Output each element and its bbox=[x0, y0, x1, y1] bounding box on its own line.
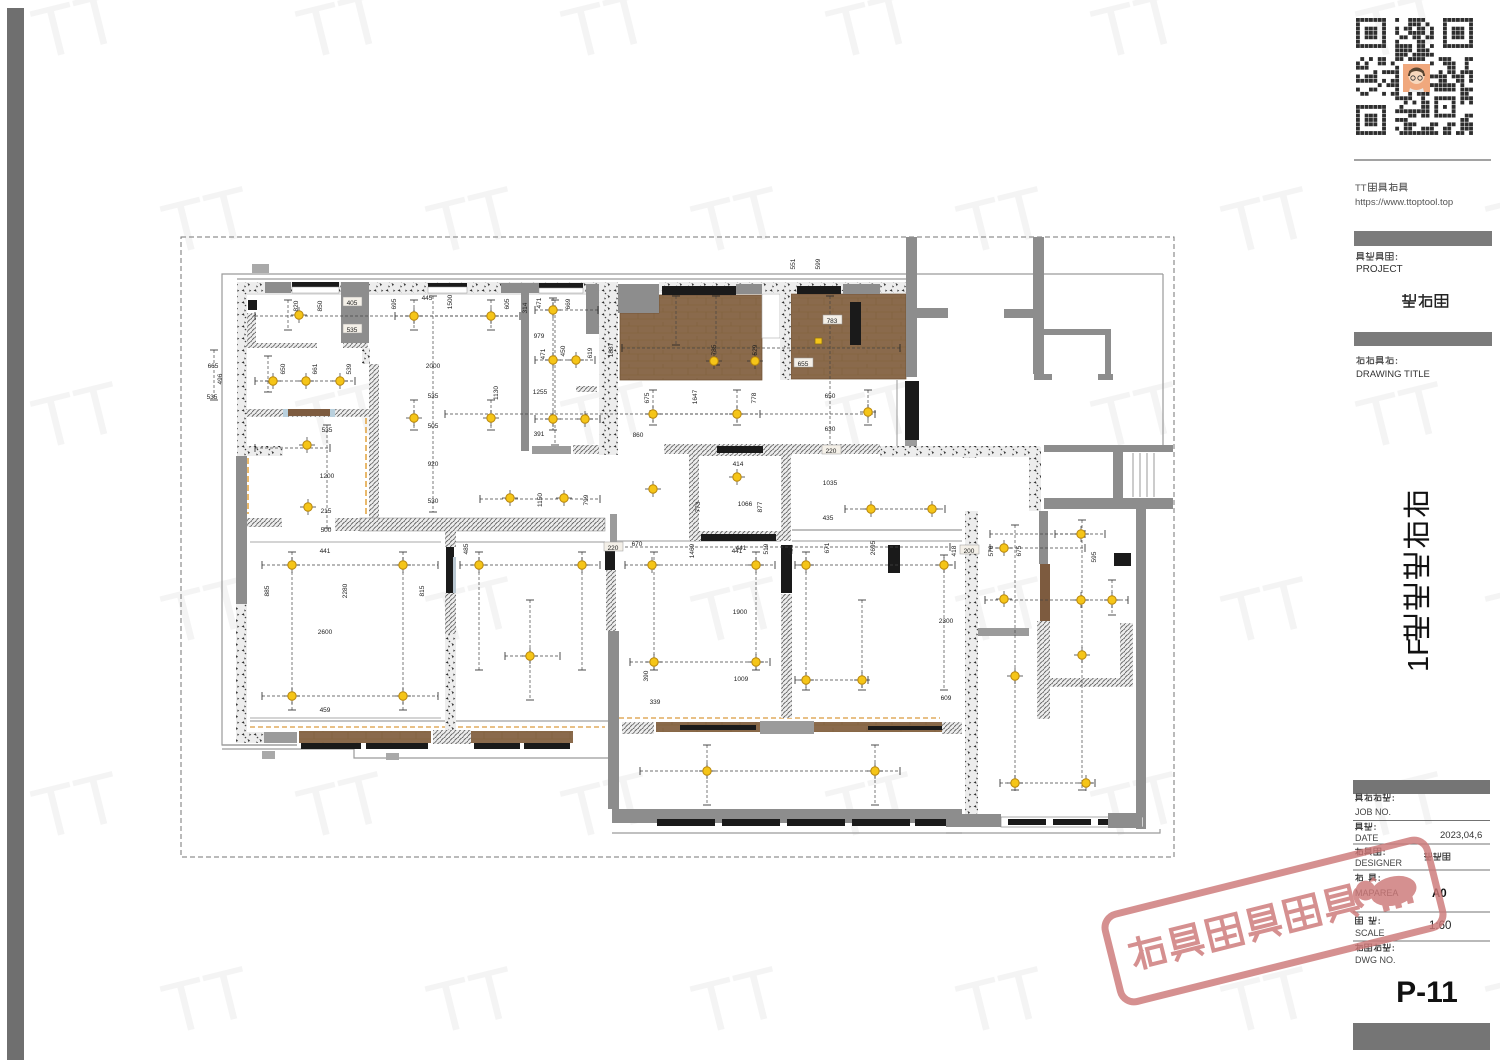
svg-text:TT: TT bbox=[685, 952, 790, 1051]
svg-text:441: 441 bbox=[320, 548, 331, 555]
svg-text:920: 920 bbox=[428, 461, 439, 468]
svg-text:535: 535 bbox=[428, 393, 439, 400]
svg-text:220: 220 bbox=[826, 448, 837, 455]
svg-text:505: 505 bbox=[428, 423, 439, 430]
svg-text:390: 390 bbox=[643, 670, 650, 681]
svg-text:P-11: P-11 bbox=[1396, 976, 1458, 1009]
svg-text:773: 773 bbox=[695, 501, 702, 512]
svg-text:815: 815 bbox=[419, 585, 426, 596]
svg-text:TT: TT bbox=[555, 757, 660, 856]
svg-text:391: 391 bbox=[534, 431, 545, 438]
svg-text:551: 551 bbox=[790, 258, 797, 269]
svg-text:519: 519 bbox=[763, 543, 770, 554]
svg-text:500: 500 bbox=[321, 527, 332, 534]
svg-text:TT: TT bbox=[820, 0, 925, 76]
svg-text:DRAWING TITLE: DRAWING TITLE bbox=[1356, 369, 1430, 380]
svg-text:675: 675 bbox=[1016, 545, 1023, 556]
svg-text:DWG NO.: DWG NO. bbox=[1355, 955, 1396, 965]
svg-text:TT: TT bbox=[1480, 172, 1500, 271]
svg-text:TT: TT bbox=[950, 952, 1055, 1051]
svg-text:1900: 1900 bbox=[733, 609, 748, 616]
svg-text:https://www.ttoptool.top: https://www.ttoptool.top bbox=[1355, 197, 1453, 208]
svg-text:TT: TT bbox=[1350, 367, 1455, 466]
svg-text:695: 695 bbox=[391, 298, 398, 309]
svg-text:1130: 1130 bbox=[493, 386, 500, 400]
svg-text:799: 799 bbox=[583, 494, 590, 505]
svg-text:TT: TT bbox=[290, 757, 395, 856]
svg-text:486: 486 bbox=[788, 544, 795, 555]
svg-text:535: 535 bbox=[347, 327, 358, 334]
svg-text:820: 820 bbox=[293, 300, 300, 311]
svg-text:671: 671 bbox=[824, 542, 831, 553]
svg-text:535: 535 bbox=[207, 394, 218, 401]
svg-text:576: 576 bbox=[988, 545, 995, 556]
svg-text:TT: TT bbox=[155, 952, 260, 1051]
svg-text:314: 314 bbox=[522, 302, 529, 313]
svg-text:441: 441 bbox=[736, 545, 747, 552]
svg-text:TT: TT bbox=[25, 367, 130, 466]
svg-text:670: 670 bbox=[632, 541, 643, 548]
svg-text:529: 529 bbox=[752, 344, 759, 355]
svg-text:TT: TT bbox=[420, 172, 525, 271]
svg-text:471: 471 bbox=[540, 348, 547, 359]
svg-text:619: 619 bbox=[587, 347, 594, 358]
svg-text:485: 485 bbox=[463, 543, 470, 554]
svg-text:405: 405 bbox=[347, 300, 358, 307]
svg-text:599: 599 bbox=[815, 258, 822, 269]
svg-text:1500: 1500 bbox=[447, 294, 454, 309]
svg-text:778: 778 bbox=[751, 392, 758, 403]
svg-text:1F: 1F bbox=[1403, 638, 1435, 672]
svg-text:860: 860 bbox=[633, 432, 644, 439]
svg-text:SCALE: SCALE bbox=[1355, 928, 1385, 938]
svg-text:220: 220 bbox=[608, 545, 619, 552]
svg-text:PROJECT: PROJECT bbox=[1356, 264, 1403, 275]
svg-text:TT: TT bbox=[555, 0, 660, 76]
svg-text:TT: TT bbox=[1215, 172, 1320, 271]
svg-text:435: 435 bbox=[823, 515, 834, 522]
svg-text:DATE: DATE bbox=[1355, 833, 1378, 843]
svg-text:TT: TT bbox=[685, 172, 790, 271]
svg-text:TT: TT bbox=[290, 0, 395, 76]
svg-text:605: 605 bbox=[504, 298, 511, 309]
svg-text:496: 496 bbox=[217, 373, 224, 384]
svg-text:650: 650 bbox=[280, 363, 287, 374]
svg-text:1150: 1150 bbox=[537, 493, 544, 507]
svg-text:TT: TT bbox=[25, 757, 130, 856]
svg-text:1035: 1035 bbox=[823, 480, 838, 487]
svg-text:675: 675 bbox=[644, 392, 651, 403]
svg-text:TT: TT bbox=[155, 172, 260, 271]
svg-text:471: 471 bbox=[536, 297, 543, 308]
svg-text:655: 655 bbox=[798, 361, 809, 368]
svg-text:414: 414 bbox=[733, 461, 744, 468]
svg-text:TT: TT bbox=[1355, 183, 1367, 194]
svg-text:TT: TT bbox=[420, 952, 525, 1051]
svg-text:1066: 1066 bbox=[738, 501, 753, 508]
svg-text:535: 535 bbox=[322, 427, 333, 434]
svg-text:1200: 1200 bbox=[320, 473, 335, 480]
svg-text:885: 885 bbox=[264, 585, 271, 596]
svg-text:665: 665 bbox=[208, 363, 219, 370]
svg-text:669: 669 bbox=[565, 298, 572, 309]
svg-text:2023,04,6: 2023,04,6 bbox=[1440, 830, 1482, 841]
svg-text:215: 215 bbox=[321, 508, 332, 515]
svg-text:785: 785 bbox=[711, 344, 718, 355]
svg-text:DESIGNER: DESIGNER bbox=[1355, 858, 1403, 868]
svg-text:418: 418 bbox=[951, 545, 958, 556]
svg-text:2300: 2300 bbox=[939, 618, 954, 625]
svg-text:2600: 2600 bbox=[318, 629, 333, 636]
svg-text:609: 609 bbox=[941, 695, 952, 702]
svg-text:2000: 2000 bbox=[426, 363, 441, 370]
svg-text:TT: TT bbox=[1480, 562, 1500, 661]
svg-text:530: 530 bbox=[428, 498, 439, 505]
svg-text:TT: TT bbox=[25, 0, 130, 76]
svg-text:850: 850 bbox=[317, 300, 324, 311]
svg-text:TT: TT bbox=[1085, 0, 1190, 76]
svg-text:877: 877 bbox=[757, 501, 764, 512]
svg-text:TT: TT bbox=[1215, 562, 1320, 661]
svg-text:445: 445 bbox=[422, 295, 433, 302]
svg-text:2280: 2280 bbox=[342, 583, 349, 598]
svg-text:459: 459 bbox=[320, 707, 331, 714]
svg-text:339: 339 bbox=[650, 699, 661, 706]
svg-text:1887: 1887 bbox=[608, 342, 615, 357]
svg-text:JOB NO.: JOB NO. bbox=[1355, 807, 1391, 817]
svg-text:1469: 1469 bbox=[689, 543, 696, 558]
svg-text:2695: 2695 bbox=[870, 540, 877, 555]
svg-text:783: 783 bbox=[827, 318, 838, 325]
svg-text:539: 539 bbox=[346, 363, 353, 374]
svg-text:595: 595 bbox=[1091, 551, 1098, 562]
svg-text:979: 979 bbox=[534, 333, 545, 340]
svg-text:661: 661 bbox=[312, 363, 319, 374]
svg-text:450: 450 bbox=[560, 345, 567, 356]
svg-text:1255: 1255 bbox=[533, 389, 548, 396]
svg-text:1647: 1647 bbox=[692, 389, 699, 404]
svg-text:200: 200 bbox=[964, 548, 975, 555]
svg-text:1009: 1009 bbox=[734, 676, 749, 683]
svg-text:TT: TT bbox=[420, 562, 525, 661]
svg-text:630: 630 bbox=[825, 426, 836, 433]
svg-text:650: 650 bbox=[825, 393, 836, 400]
